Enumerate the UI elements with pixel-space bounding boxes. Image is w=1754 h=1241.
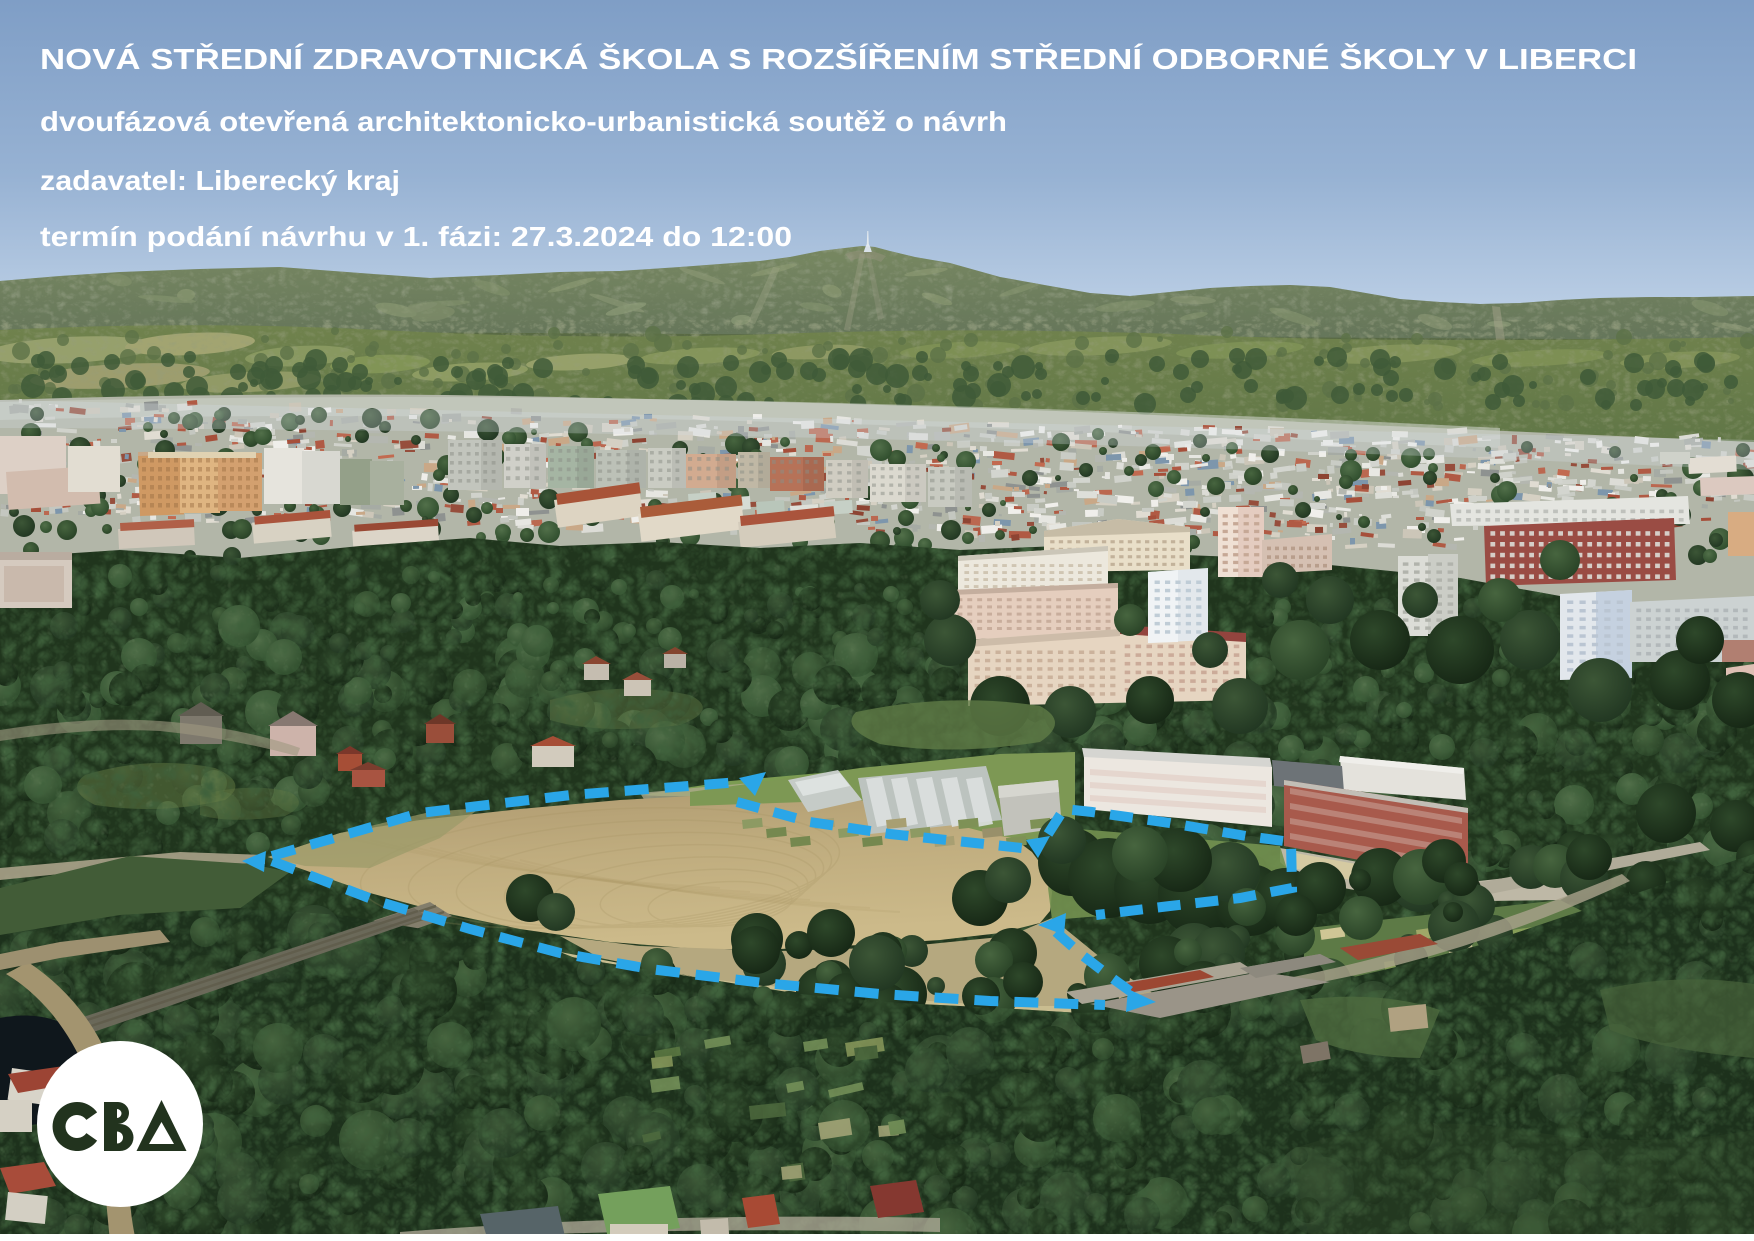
svg-text:dvoufázová otevřená architekto: dvoufázová otevřená architektonicko-urba… [40,106,1007,137]
svg-text:zadavatel: Liberecký kraj: zadavatel: Liberecký kraj [40,165,400,196]
svg-text:NOVÁ STŘEDNÍ ZDRAVOTNICKÁ ŠKOL: NOVÁ STŘEDNÍ ZDRAVOTNICKÁ ŠKOLA S ROZŠÍŘ… [40,43,1637,76]
svg-text:termín podání návrhu v 1. fázi: termín podání návrhu v 1. fázi: 27.3.202… [40,221,792,252]
